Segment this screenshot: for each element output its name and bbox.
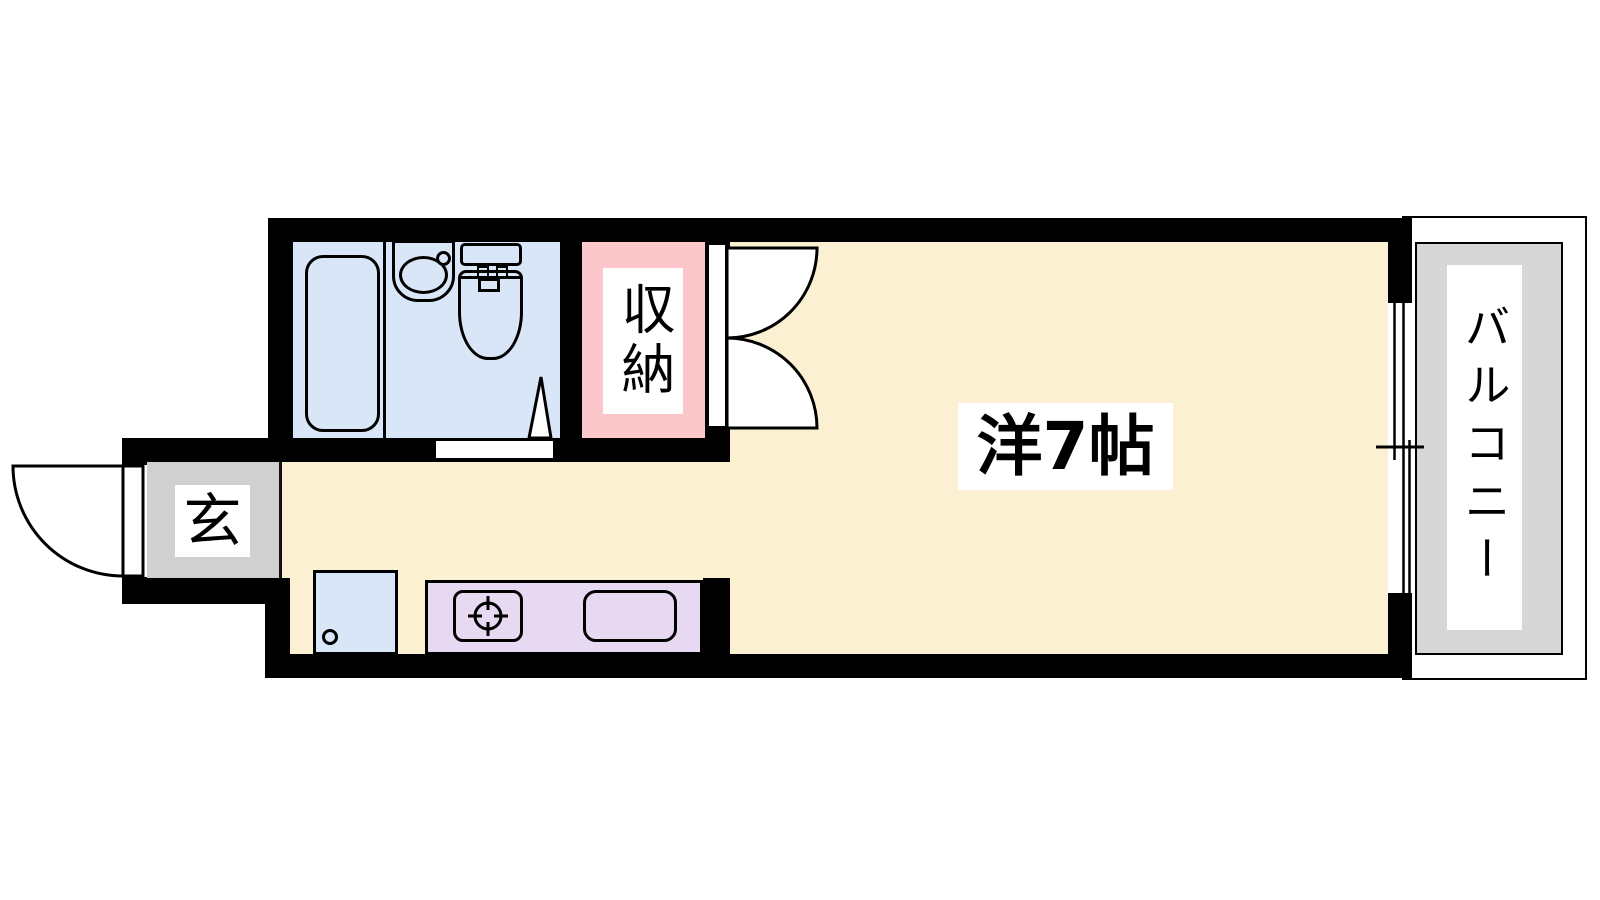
wall-kitchen-stub [703, 578, 730, 678]
floor-plan: 玄 収納 洋7帖 バルコニー [0, 0, 1600, 900]
closet-door-frame [707, 243, 727, 428]
wall-top [268, 218, 1412, 242]
bathroom-threshold [436, 441, 553, 458]
bathroom-divider-line [383, 242, 386, 438]
bathtub [305, 255, 380, 432]
kitchen-sink [583, 590, 677, 642]
entrance-door-swing [13, 466, 123, 576]
wall-bath-closet [560, 242, 582, 438]
window-opening [1388, 303, 1412, 593]
washer-drain [322, 629, 338, 645]
toilet-notch [478, 278, 500, 292]
closet-label: 収納 [603, 268, 683, 414]
toilet-tank [460, 243, 522, 266]
balcony-label: バルコニー [1447, 265, 1522, 630]
faucet-circle [436, 251, 451, 266]
wall-bottom [265, 654, 1412, 678]
entrance-door-opening [122, 465, 147, 577]
wall-mid-horizontal [122, 438, 730, 462]
main-room-label: 洋7帖 [958, 403, 1173, 490]
entrance-label: 玄 [175, 485, 250, 557]
stove [453, 590, 523, 642]
wall-left-upper [268, 218, 293, 462]
entrance-hall-divider [279, 462, 282, 578]
